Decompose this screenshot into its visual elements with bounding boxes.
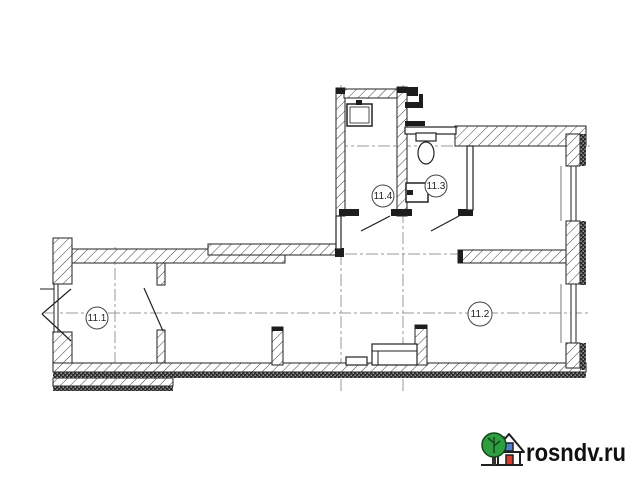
vent-shaft-edge bbox=[419, 94, 423, 103]
wall-cap bbox=[336, 88, 345, 94]
room-label-11-2: 11.2 bbox=[468, 302, 492, 326]
wall-cap bbox=[397, 87, 407, 93]
wall-stub-cap bbox=[415, 325, 427, 329]
room-label-text: 11.3 bbox=[427, 181, 446, 192]
floor-plan-canvas: 11.1 11.2 11.3 11.4 rosndv.ru bbox=[0, 0, 640, 480]
room-label-11-4: 11.4 bbox=[372, 185, 394, 207]
walls-hatched bbox=[53, 87, 586, 386]
bottom-wall-insulation bbox=[53, 372, 586, 378]
room-2-top-wall bbox=[458, 250, 569, 263]
corridor-top-wall-step bbox=[208, 244, 341, 255]
wall-stub-left bbox=[272, 327, 283, 365]
room-label-11-1: 11.1 bbox=[86, 307, 108, 329]
room-label-text: 11.4 bbox=[374, 191, 393, 202]
wall-cap bbox=[407, 87, 418, 96]
toilet-icon bbox=[416, 133, 436, 164]
door-swing-wc bbox=[431, 216, 459, 231]
bathroom-left-wall bbox=[336, 88, 345, 216]
brand-text: rosndv.ru bbox=[526, 439, 626, 467]
watermark-logo: rosndv.ru bbox=[481, 433, 626, 467]
room-label-text: 11.1 bbox=[88, 313, 107, 324]
room-label-text: 11.2 bbox=[471, 309, 490, 320]
bottom-left-wall-step bbox=[53, 378, 173, 386]
bathroom-top-wall bbox=[344, 89, 398, 98]
left-exterior-wall-upper bbox=[53, 238, 72, 284]
bottom-exterior-wall bbox=[53, 363, 586, 372]
window-left bbox=[54, 284, 58, 332]
vent-shaft-edge bbox=[405, 121, 425, 126]
door-post bbox=[339, 209, 359, 216]
right-pillar-facing-bottom bbox=[580, 343, 586, 370]
wc-right-wall bbox=[467, 146, 473, 210]
sink-icon bbox=[347, 100, 372, 126]
screenshot-root: 11.1 11.2 11.3 11.4 rosndv.ru bbox=[0, 0, 640, 480]
room-1-right-wall-upper bbox=[157, 263, 165, 285]
room-1-right-wall-lower bbox=[157, 330, 165, 363]
right-wall-pillar-top bbox=[566, 134, 580, 166]
front-door bbox=[506, 455, 513, 465]
right-wall-pillar-bottom bbox=[566, 343, 580, 368]
wall-end-cap bbox=[458, 250, 463, 263]
door-swing-bathroom bbox=[361, 216, 390, 231]
thin-wall bbox=[336, 216, 341, 249]
wall-stub-cap bbox=[272, 327, 283, 331]
duct-box-small bbox=[346, 357, 367, 365]
window-right-upper bbox=[571, 166, 576, 221]
fixtures bbox=[347, 100, 436, 202]
right-pillar-facing-middle bbox=[580, 221, 586, 285]
window-right-lower bbox=[571, 284, 576, 343]
door-swing-room-1 bbox=[144, 288, 163, 331]
bottom-step-insulation bbox=[53, 386, 173, 391]
right-wall-pillar-middle bbox=[566, 221, 580, 284]
duct-box-large bbox=[372, 344, 417, 365]
right-pillar-facing-top bbox=[580, 134, 586, 166]
room-label-11-3: 11.3 bbox=[425, 175, 447, 197]
door-post bbox=[391, 209, 412, 216]
